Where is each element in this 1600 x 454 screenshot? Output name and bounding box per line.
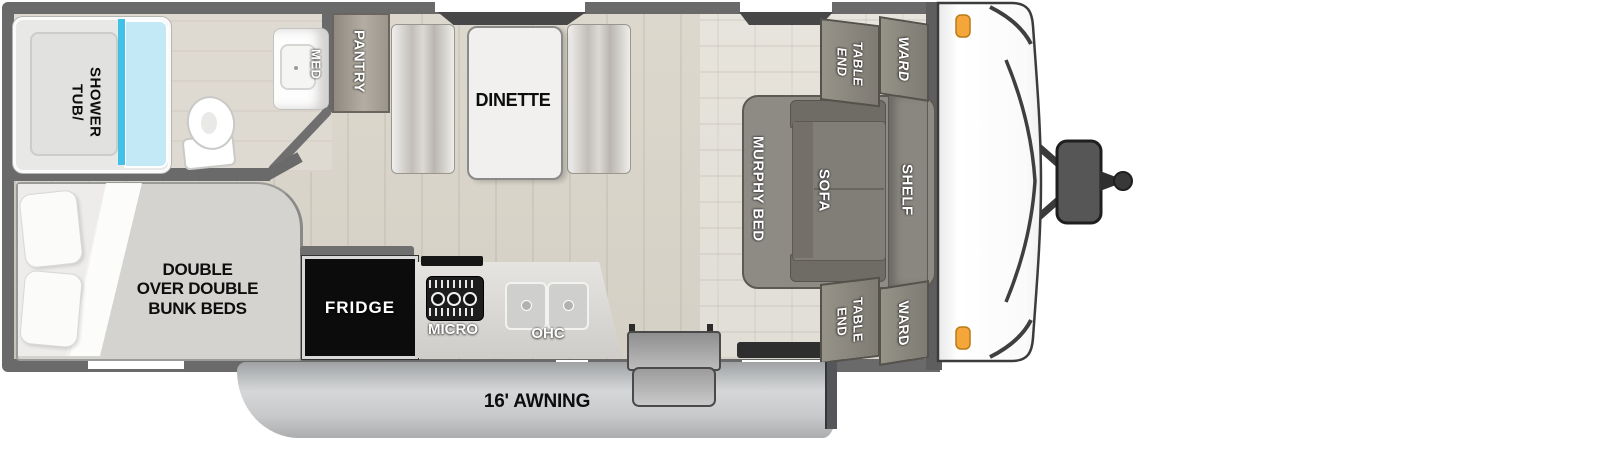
wardrobe-top: WARD	[879, 16, 929, 102]
end-table-bottom-label: END TABLE	[822, 279, 878, 362]
floorplan-canvas: TUB/ SHOWER MED PANTRY DINETTE MURPHY BE…	[0, 0, 1600, 454]
bunk-beds-label: DOUBLE OVER DOUBLE BUNK BEDS	[105, 258, 290, 320]
shelf-label: SHELF	[895, 140, 919, 240]
pillow-bottom	[19, 270, 83, 349]
marker-light-bottom	[956, 327, 970, 349]
entry-door	[737, 342, 833, 358]
shower-glass-door	[118, 19, 125, 165]
fridge: FRIDGE	[302, 256, 418, 359]
toilet-bowl-inner	[201, 112, 217, 134]
window-top-living	[740, 2, 832, 12]
cap-graphic-bottom	[990, 320, 1031, 357]
end-table-top: END TABLE	[820, 18, 880, 107]
pantry-label: PANTRY	[338, 15, 380, 107]
cap-graphic-chevron	[1006, 60, 1035, 302]
marker-light-top	[956, 15, 970, 37]
cap-graphic-top	[990, 7, 1031, 44]
murphy-bed-label: MURPHY BED	[746, 105, 770, 273]
entry-step-upper	[627, 331, 721, 371]
burner-icon	[447, 292, 461, 306]
window-shade-dinette	[433, 12, 591, 25]
a-frame-bar-bottom	[1031, 188, 1072, 224]
wardrobe-bottom: WARD	[879, 280, 929, 366]
faucet-icon	[294, 66, 298, 70]
end-table-bottom: END TABLE	[820, 277, 880, 364]
cooktop-grate-bottom	[429, 308, 477, 316]
med-cabinet-label: MED	[306, 34, 326, 94]
range-hood	[421, 256, 483, 266]
tub-shower-label: TUB/ SHOWER	[60, 42, 112, 162]
dinette-label: DINETTE	[455, 88, 571, 112]
burner-icon	[431, 292, 445, 306]
wardrobe-top-label: WARD	[881, 18, 927, 99]
pillow-top	[18, 189, 83, 269]
window-bottom-bunk	[88, 360, 184, 369]
shower-glass-panel	[124, 20, 168, 168]
cooktop-micro-icon	[426, 276, 484, 321]
awning-end-cap	[825, 362, 837, 429]
sink-drain-icon	[521, 300, 532, 311]
sink-drain-icon	[563, 300, 574, 311]
propane-tank-cover	[1057, 141, 1101, 223]
sofa-backrest	[793, 122, 813, 258]
dinette-bench-left	[391, 24, 455, 174]
cooktop-grate-top	[429, 280, 477, 288]
hitch-stem	[1100, 171, 1116, 191]
hitch-ball	[1114, 172, 1132, 190]
ohc-label: OHC	[516, 325, 580, 342]
entry-step-lower	[632, 367, 716, 407]
kitchen-sink-left	[505, 282, 547, 330]
window-top-dinette	[435, 2, 585, 12]
front-cap	[938, 3, 1041, 361]
a-frame-bar-top	[1031, 140, 1072, 176]
dinette-bench-right	[567, 24, 631, 174]
wardrobe-bottom-label: WARD	[881, 282, 927, 363]
burner-icon	[463, 292, 477, 306]
kitchen-sink-right	[547, 282, 589, 330]
micro-label: MICRO	[420, 321, 486, 338]
sofa-label: SOFA	[812, 140, 836, 240]
awning-label: 16' AWNING	[437, 391, 637, 413]
end-table-top-label: END TABLE	[822, 20, 878, 105]
